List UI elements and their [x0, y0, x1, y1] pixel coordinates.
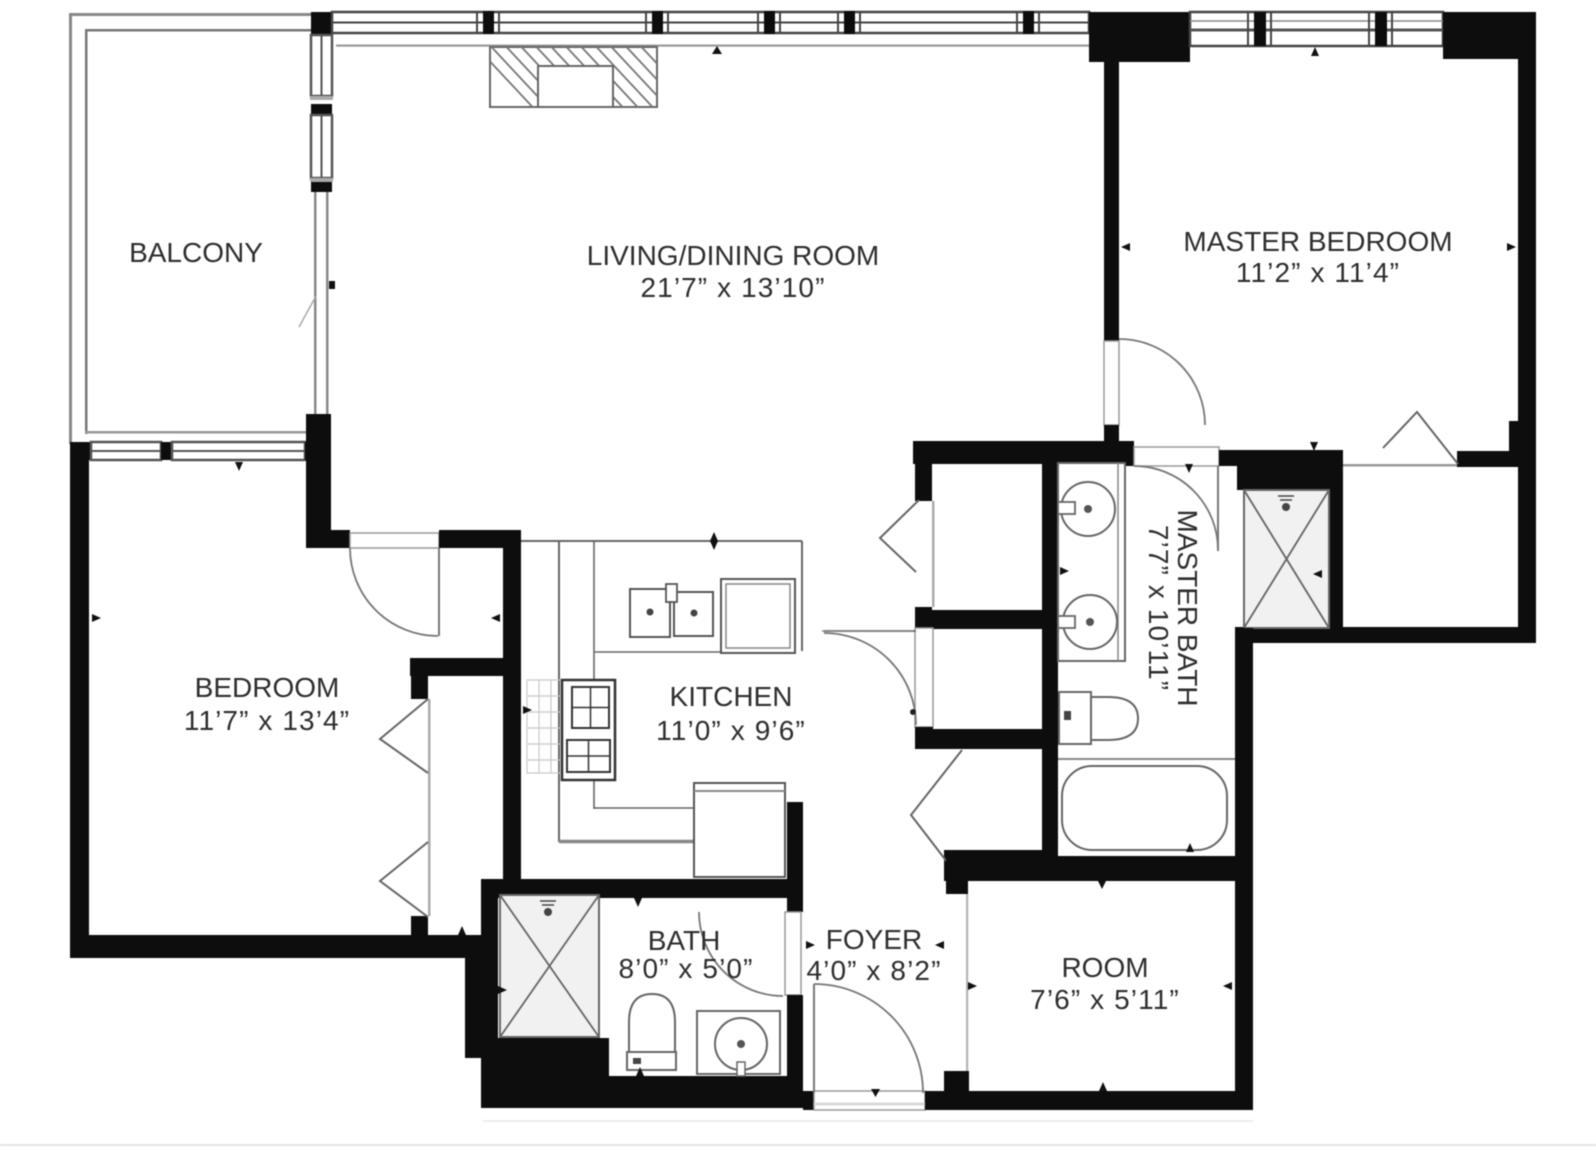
svg-text:BATH: BATH [648, 925, 721, 956]
svg-text:ROOM: ROOM [1061, 952, 1148, 983]
svg-text:FOYER: FOYER [826, 924, 922, 955]
svg-text:11’0” x 9’6”: 11’0” x 9’6” [656, 715, 806, 746]
svg-text:MASTER BEDROOM: MASTER BEDROOM [1183, 226, 1452, 257]
svg-text:8’0” x 5’0”: 8’0” x 5’0” [618, 953, 753, 984]
svg-text:11’2” x 11’4”: 11’2” x 11’4” [1236, 257, 1400, 288]
svg-text:BALCONY: BALCONY [129, 237, 263, 268]
svg-text:BEDROOM: BEDROOM [195, 672, 340, 703]
svg-text:MASTER BATH: MASTER BATH [1172, 509, 1203, 706]
svg-text:21’7” x 13’10”: 21’7” x 13’10” [640, 272, 825, 303]
svg-text:7’7” x 10’11”: 7’7” x 10’11” [1143, 525, 1174, 691]
svg-text:7’6” x 5’11”: 7’6” x 5’11” [1030, 984, 1180, 1015]
svg-text:LIVING/DINING ROOM: LIVING/DINING ROOM [587, 240, 879, 271]
svg-text:4’0” x 8’2”: 4’0” x 8’2” [806, 955, 941, 986]
svg-text:11’7” x 13’4”: 11’7” x 13’4” [184, 705, 350, 736]
svg-text:KITCHEN: KITCHEN [670, 681, 793, 712]
